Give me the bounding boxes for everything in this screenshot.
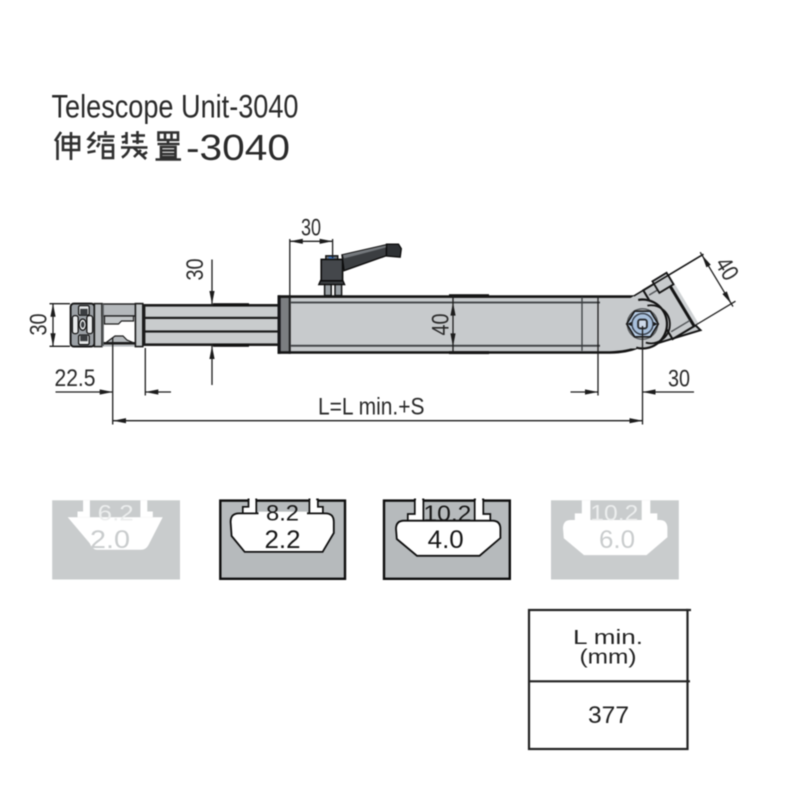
svg-text:10.2: 10.2 [423, 501, 471, 526]
svg-text:377: 377 [588, 702, 629, 729]
svg-text:L=L min.+S: L=L min.+S [318, 394, 425, 421]
svg-text:10.2: 10.2 [590, 500, 638, 525]
svg-text:-3040: -3040 [186, 127, 290, 168]
svg-text:30: 30 [26, 314, 53, 336]
svg-text:2.2: 2.2 [265, 526, 301, 554]
svg-text:(mm): (mm) [580, 647, 637, 669]
svg-text:6.2: 6.2 [98, 500, 134, 525]
svg-text:6.0: 6.0 [599, 526, 635, 554]
svg-text:Telescope Unit-3040: Telescope Unit-3040 [52, 89, 299, 125]
svg-text:30: 30 [668, 366, 690, 393]
svg-text:2.0: 2.0 [90, 526, 130, 554]
svg-text:40: 40 [428, 314, 455, 336]
svg-text:4.0: 4.0 [428, 526, 464, 554]
svg-text:30: 30 [301, 215, 321, 242]
svg-text:30: 30 [182, 259, 209, 281]
svg-text:22.5: 22.5 [55, 365, 96, 392]
svg-text:8.2: 8.2 [266, 501, 299, 526]
